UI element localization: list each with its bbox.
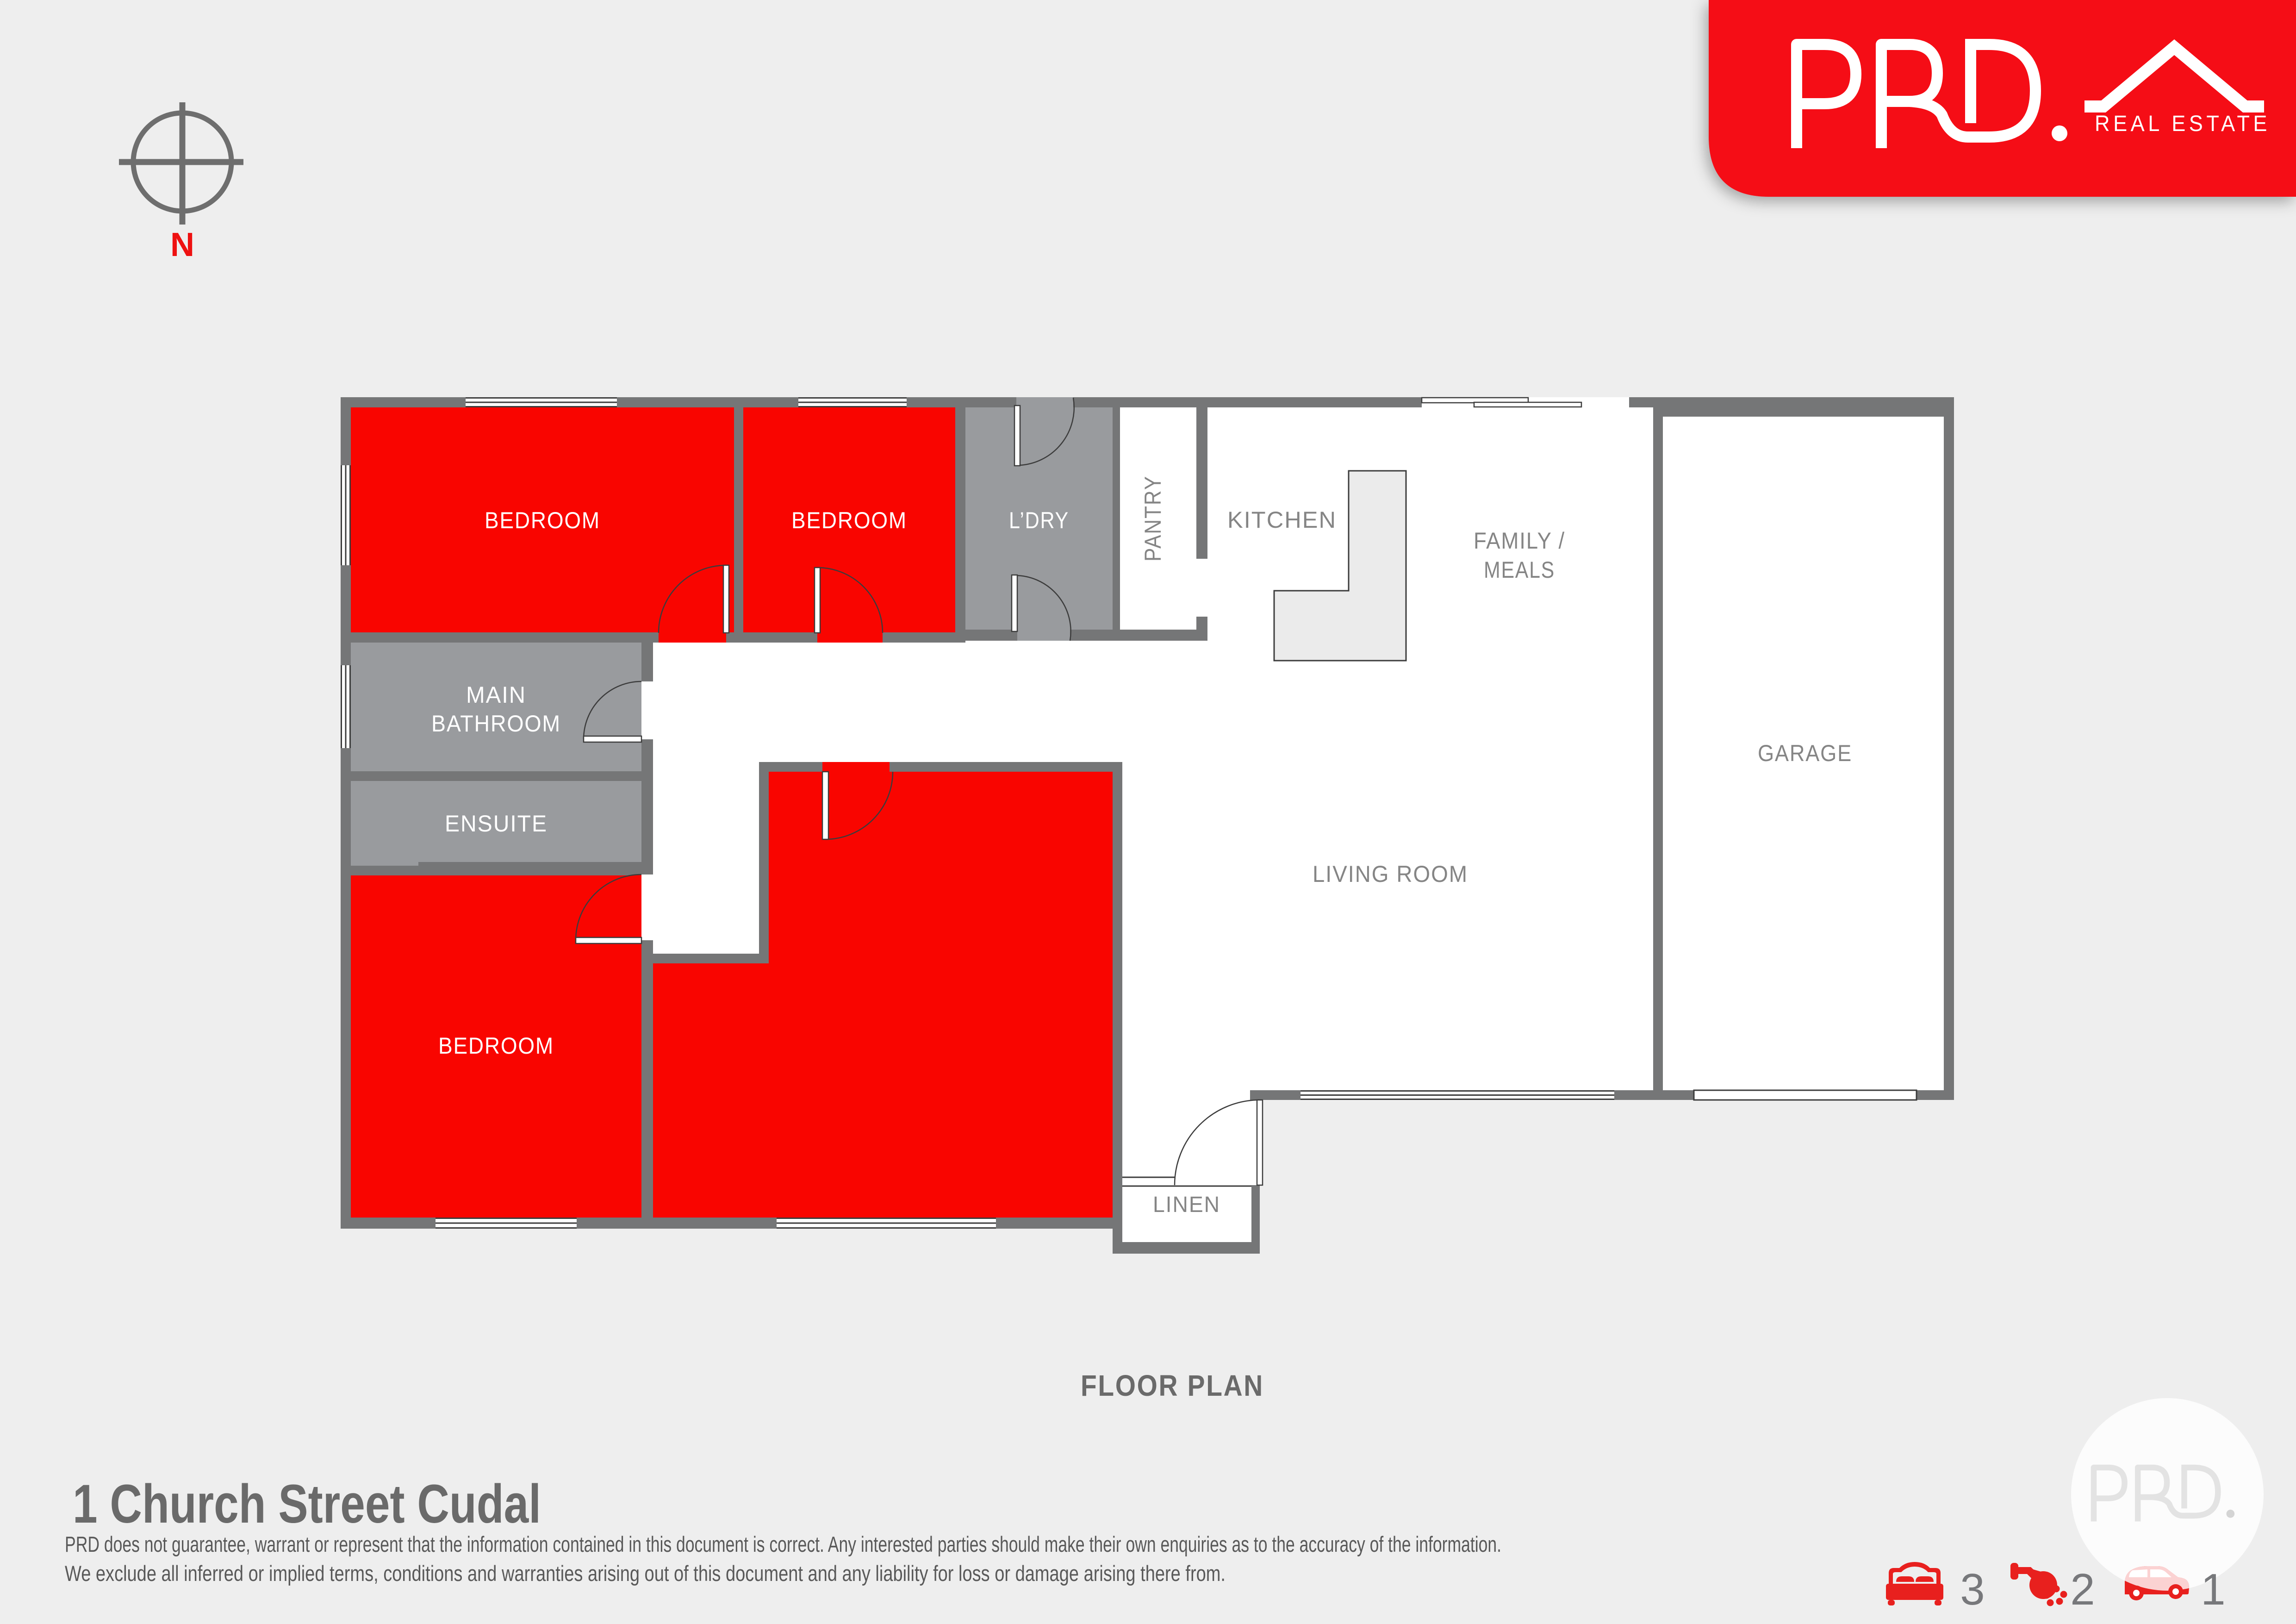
svg-text:N: N xyxy=(170,226,194,263)
svg-text:1 Church Street Cudal: 1 Church Street Cudal xyxy=(73,1474,541,1535)
svg-text:PRD does not guarantee, warran: PRD does not guarantee, warrant or repre… xyxy=(65,1532,1501,1556)
svg-text:REAL ESTATE: REAL ESTATE xyxy=(2095,112,2271,136)
svg-text:BEDROOM: BEDROOM xyxy=(791,507,907,533)
svg-text:3: 3 xyxy=(1960,1565,1985,1614)
svg-text:FAMILY /: FAMILY / xyxy=(1474,528,1565,554)
svg-text:FLOOR PLAN: FLOOR PLAN xyxy=(1081,1369,1264,1402)
svg-text:1: 1 xyxy=(2201,1565,2225,1614)
svg-text:KITCHEN: KITCHEN xyxy=(1227,507,1337,533)
svg-text:BEDROOM: BEDROOM xyxy=(485,507,600,533)
svg-text:LINEN: LINEN xyxy=(1153,1193,1220,1217)
svg-text:BEDROOM: BEDROOM xyxy=(438,1033,554,1059)
svg-text:PANTRY: PANTRY xyxy=(1140,475,1166,562)
svg-text:MEALS: MEALS xyxy=(1484,557,1555,583)
svg-text:GARAGE: GARAGE xyxy=(1758,740,1852,766)
svg-text:MAIN: MAIN xyxy=(466,682,526,708)
svg-text:BATHROOM: BATHROOM xyxy=(431,711,561,737)
svg-text:L’DRY: L’DRY xyxy=(1009,507,1069,533)
svg-text:We exclude all inferred or imp: We exclude all inferred or implied terms… xyxy=(65,1561,1226,1586)
svg-text:2: 2 xyxy=(2070,1565,2095,1614)
svg-text:ENSUITE: ENSUITE xyxy=(445,811,548,837)
svg-text:LIVING ROOM: LIVING ROOM xyxy=(1313,861,1468,887)
